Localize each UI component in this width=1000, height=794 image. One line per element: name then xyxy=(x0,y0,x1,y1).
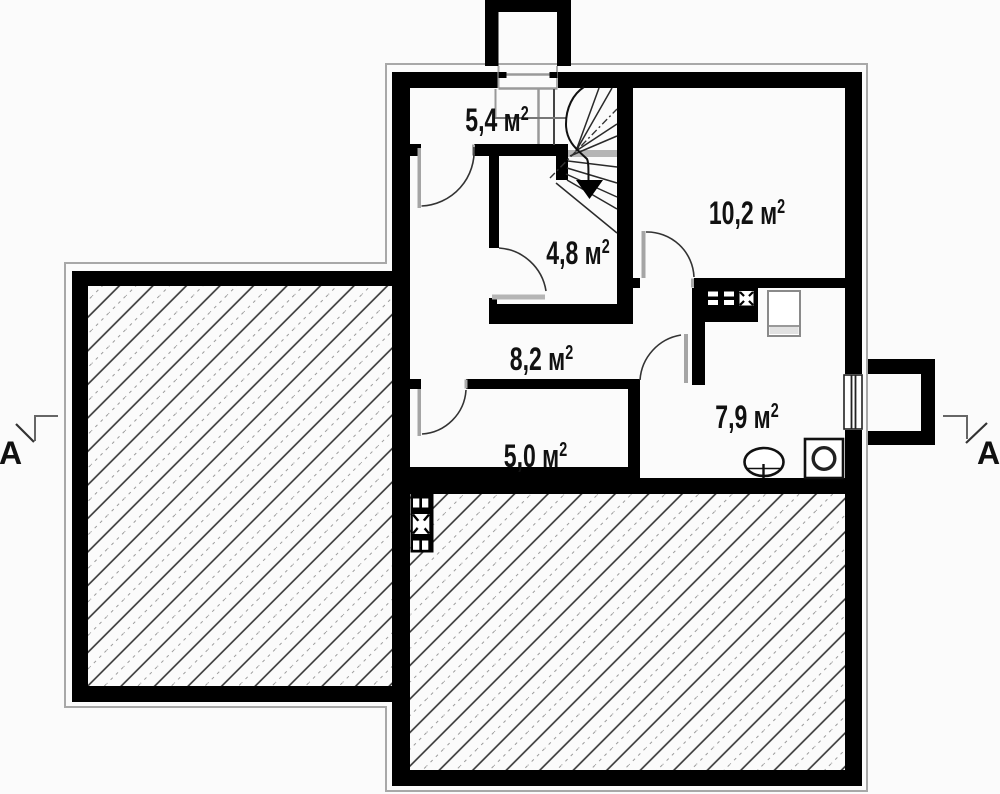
svg-text:10,2 м2: 10,2 м2 xyxy=(709,195,785,231)
svg-text:7,9 м2: 7,9 м2 xyxy=(715,399,778,435)
svg-text:8,2 м2: 8,2 м2 xyxy=(510,341,573,377)
svg-text:A: A xyxy=(0,435,22,471)
svg-text:5,0 м2: 5,0 м2 xyxy=(504,438,567,474)
svg-text:4,8 м2: 4,8 м2 xyxy=(546,235,609,271)
svg-text:5,4 м2: 5,4 м2 xyxy=(465,102,528,138)
svg-text:A: A xyxy=(977,435,1000,471)
